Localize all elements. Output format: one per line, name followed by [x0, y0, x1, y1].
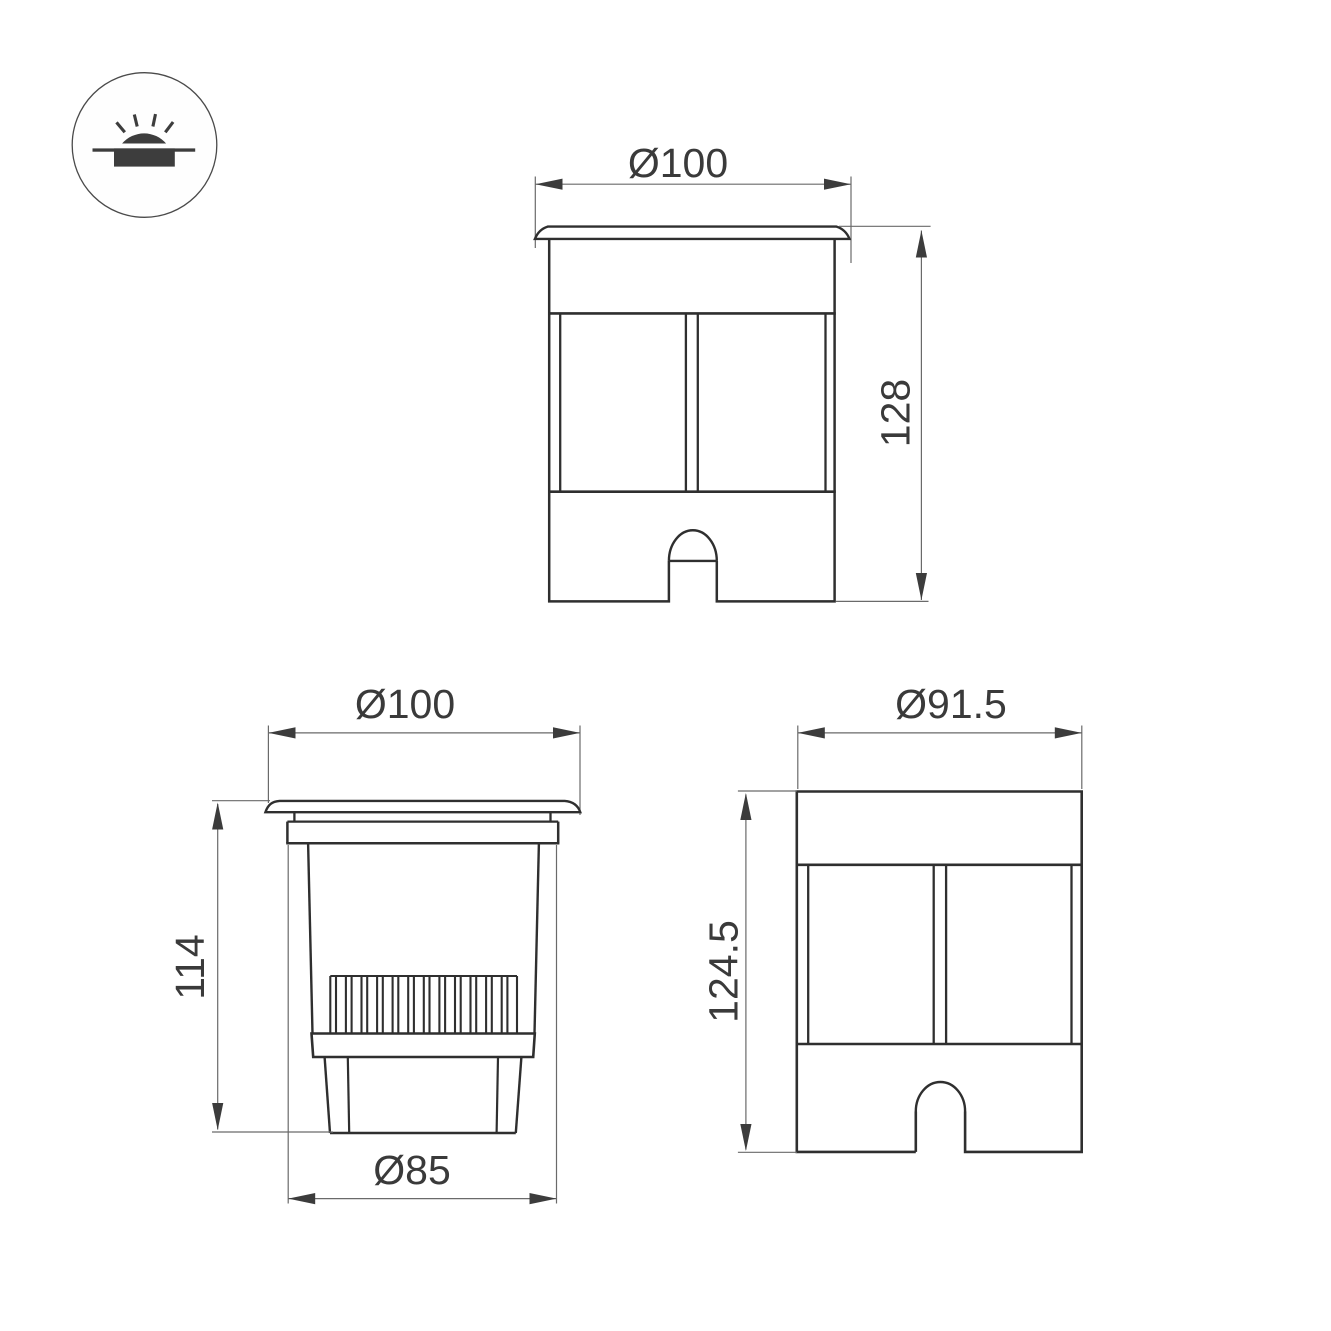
svg-text:Ø91.5: Ø91.5: [895, 681, 1007, 727]
svg-text:Ø85: Ø85: [373, 1147, 451, 1193]
svg-text:124.5: 124.5: [701, 920, 747, 1023]
svg-text:Ø100: Ø100: [628, 140, 728, 186]
svg-text:Ø100: Ø100: [355, 681, 455, 727]
svg-text:128: 128: [873, 379, 919, 447]
svg-text:114: 114: [167, 934, 213, 999]
